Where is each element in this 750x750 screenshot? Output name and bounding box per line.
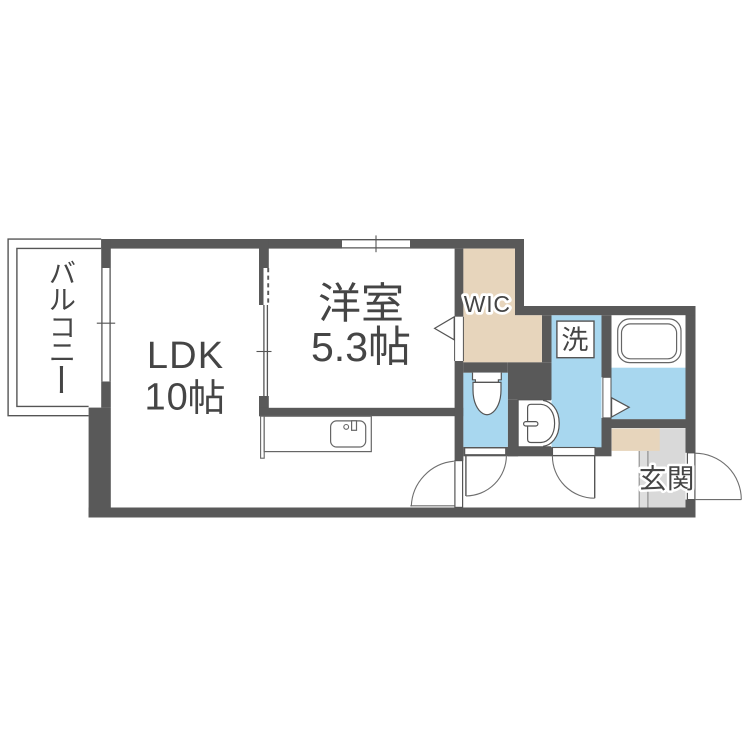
svg-text:LDK: LDK xyxy=(147,335,225,377)
svg-text:10: 10 xyxy=(145,377,189,419)
svg-text:WIC: WIC xyxy=(464,291,511,317)
svg-text:5.3: 5.3 xyxy=(311,324,368,370)
